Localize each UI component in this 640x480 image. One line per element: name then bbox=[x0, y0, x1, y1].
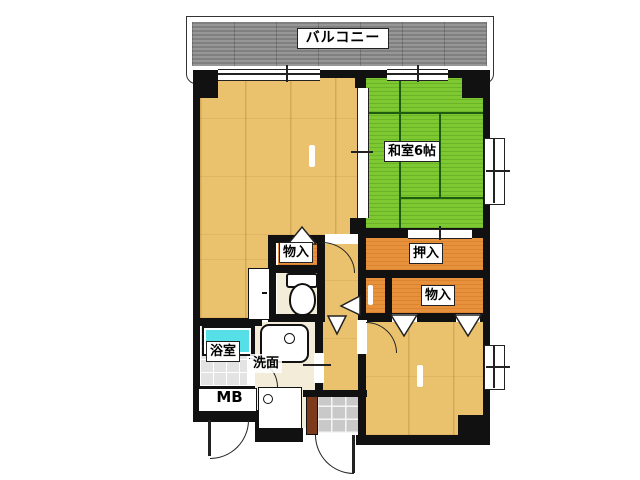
wall bbox=[255, 428, 303, 442]
washroom-door-tick bbox=[303, 364, 331, 366]
monoire-lower-door-icon bbox=[389, 314, 419, 338]
washing-machine-pan bbox=[258, 387, 302, 429]
washitsu-label: 和室6帖 bbox=[384, 141, 440, 162]
fusuma-partition bbox=[357, 88, 369, 218]
wall bbox=[315, 383, 323, 397]
window-right-bedroom bbox=[484, 345, 505, 390]
window-tick bbox=[286, 65, 288, 82]
counter-unit bbox=[248, 268, 270, 320]
counter-tick bbox=[262, 292, 267, 294]
washroom-label: 洗面 bbox=[250, 354, 282, 373]
oshiire-label: 押入 bbox=[409, 243, 443, 264]
room-living-floor bbox=[200, 78, 358, 235]
bathroom-label: 浴室 bbox=[206, 341, 240, 362]
window-tick bbox=[417, 65, 419, 82]
entrance-door-line bbox=[352, 435, 355, 473]
room-mark-living bbox=[309, 145, 315, 167]
room-mark-bedroom bbox=[417, 365, 423, 387]
meter-box-door-arc bbox=[210, 420, 249, 459]
washbasin-faucet bbox=[284, 333, 295, 344]
monoire-lower-door-icon bbox=[453, 314, 483, 338]
entrance-tile bbox=[317, 397, 358, 433]
floor-plan-canvas: バルコニー bbox=[0, 0, 640, 480]
washing-machine-drain bbox=[263, 394, 273, 404]
window-right-washitsu bbox=[484, 138, 505, 205]
wall bbox=[366, 270, 490, 278]
window-top-left-line bbox=[218, 73, 320, 75]
room-mark-cell bbox=[368, 285, 373, 305]
shoe-cabinet bbox=[306, 396, 318, 435]
meter-box-label: MB bbox=[200, 388, 259, 407]
wall bbox=[358, 352, 366, 437]
hall-door-icon bbox=[326, 315, 348, 336]
wall bbox=[458, 415, 483, 437]
window-top-left bbox=[218, 69, 320, 81]
toilet-bowl bbox=[289, 283, 316, 316]
wall bbox=[350, 218, 366, 230]
monoire-upper-label: 物入 bbox=[279, 242, 313, 263]
window-tick bbox=[486, 366, 510, 368]
window-tick bbox=[486, 170, 510, 172]
tatami-line bbox=[366, 112, 483, 114]
entrance-door-arc bbox=[315, 435, 354, 474]
washroom-door-gap bbox=[314, 353, 324, 383]
wall bbox=[193, 70, 200, 422]
tatami-line bbox=[400, 197, 483, 199]
meter-box-door-line bbox=[208, 420, 211, 456]
wall bbox=[315, 322, 323, 353]
wall bbox=[385, 278, 392, 313]
fusuma-tick bbox=[439, 226, 441, 240]
wall bbox=[268, 265, 325, 273]
monoire-lower-label: 物入 bbox=[421, 285, 455, 306]
fusuma-tick bbox=[351, 151, 373, 153]
wall bbox=[355, 78, 366, 88]
balcony-label: バルコニー bbox=[297, 28, 389, 49]
